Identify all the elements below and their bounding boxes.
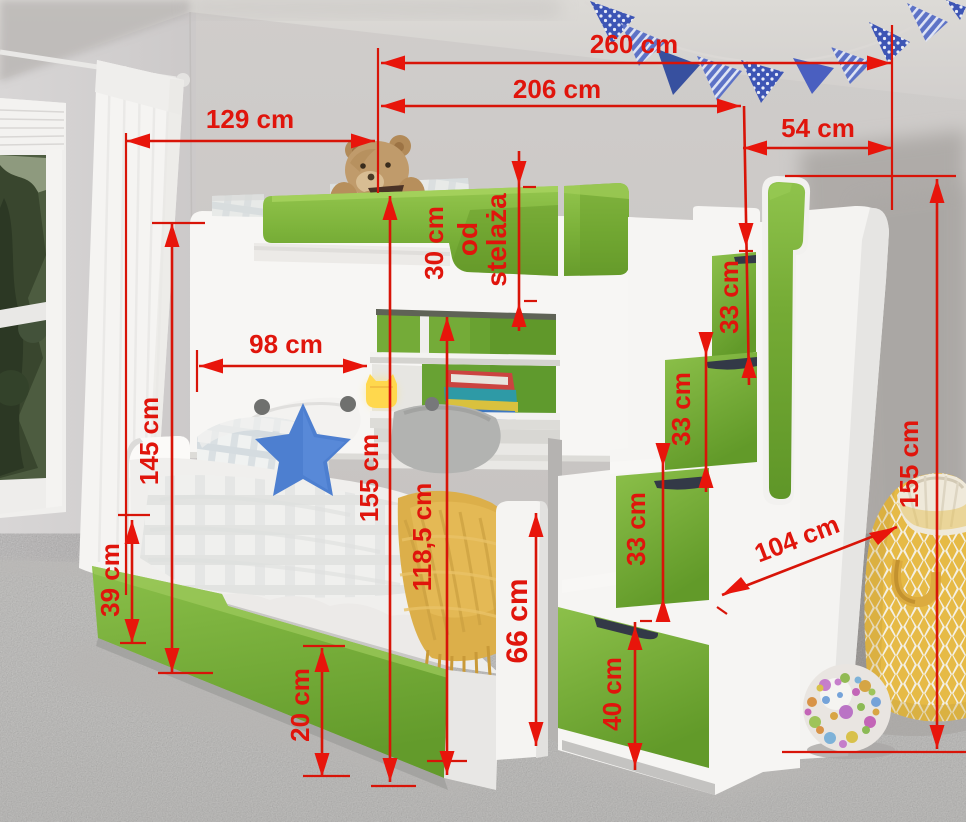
svg-text:54 cm: 54 cm <box>781 113 855 143</box>
svg-text:260 cm: 260 cm <box>590 29 678 59</box>
svg-text:40 cm: 40 cm <box>597 657 627 731</box>
svg-text:33 cm: 33 cm <box>714 260 744 334</box>
svg-text:129 cm: 129 cm <box>206 104 294 134</box>
svg-text:98 cm: 98 cm <box>249 329 323 359</box>
svg-text:206 cm: 206 cm <box>513 74 601 104</box>
svg-text:33 cm: 33 cm <box>621 492 651 566</box>
svg-text:145 cm: 145 cm <box>134 397 164 485</box>
svg-text:30 cm: 30 cm <box>419 206 449 280</box>
svg-text:118,5 cm: 118,5 cm <box>407 483 437 591</box>
svg-text:od: od <box>452 222 483 256</box>
svg-text:33 cm: 33 cm <box>666 372 696 446</box>
svg-text:155 cm: 155 cm <box>354 434 384 522</box>
svg-text:39 cm: 39 cm <box>95 543 125 617</box>
svg-text:stelaża: stelaża <box>481 193 512 287</box>
svg-text:66 cm: 66 cm <box>501 578 534 663</box>
svg-text:155 cm: 155 cm <box>894 420 924 508</box>
svg-text:20 cm: 20 cm <box>285 668 315 742</box>
